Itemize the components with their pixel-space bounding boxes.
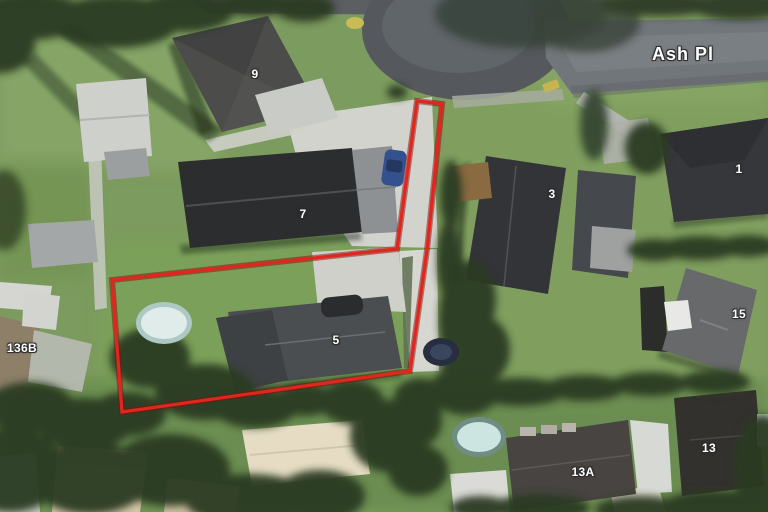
- house-unlabeled-roof: [572, 170, 636, 278]
- house-1-roof: [660, 118, 768, 222]
- paddling-pool: [136, 302, 192, 344]
- yellow-object: [346, 17, 364, 29]
- house-7-roof: [178, 146, 398, 248]
- aerial-map[interactable]: Ash Pl 9 7 5 3 1 15 13A 13 136B: [0, 0, 768, 512]
- swimming-pool: [452, 417, 506, 457]
- trampoline: [423, 338, 459, 366]
- satellite-imagery: [0, 0, 768, 512]
